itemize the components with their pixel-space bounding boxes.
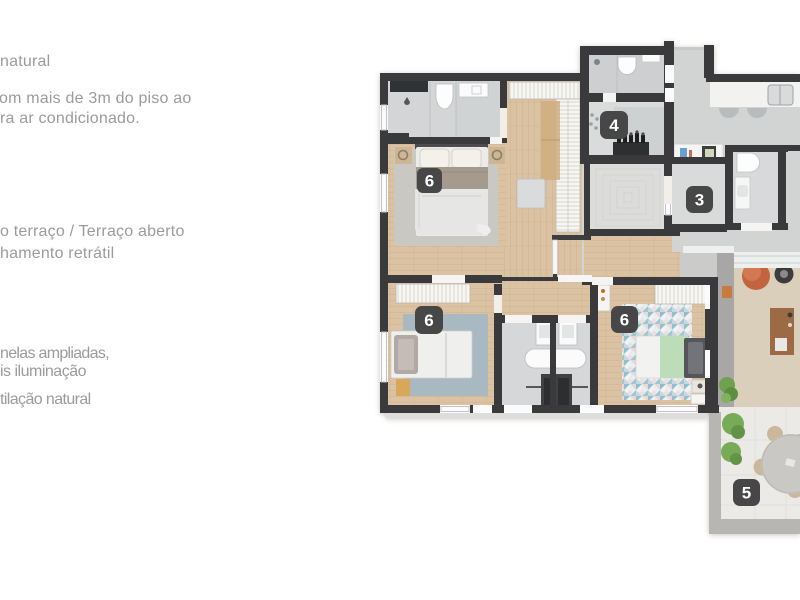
svg-text:3: 3 <box>695 191 704 210</box>
svg-text:6: 6 <box>425 172 434 191</box>
svg-text:5: 5 <box>742 484 751 503</box>
svg-text:6: 6 <box>424 311 433 330</box>
svg-text:4: 4 <box>609 116 619 135</box>
svg-text:6: 6 <box>620 311 629 330</box>
